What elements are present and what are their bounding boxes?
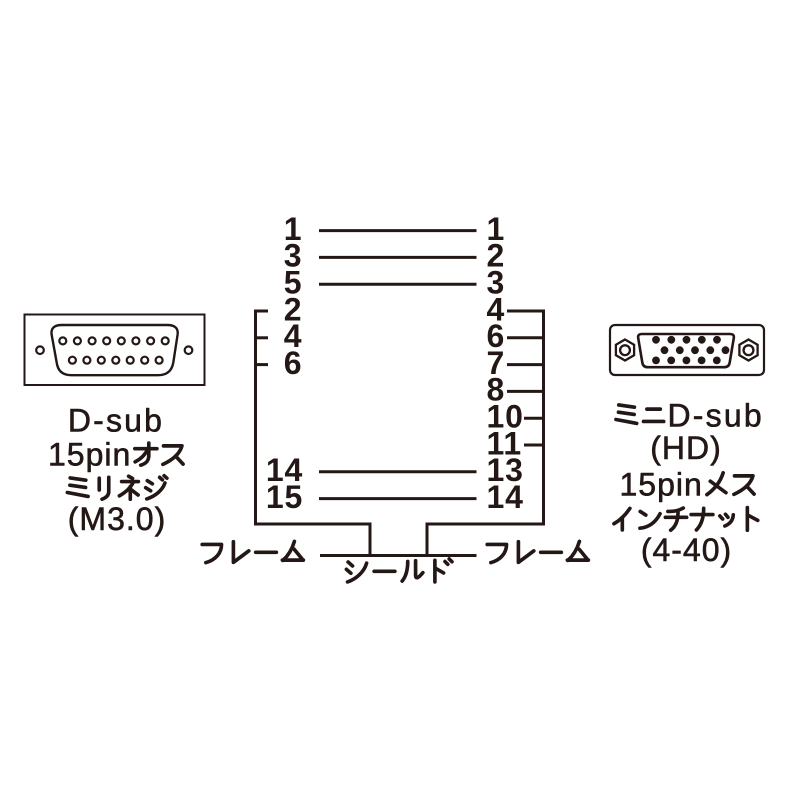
svg-text:D-sub: D-sub <box>68 403 164 439</box>
svg-text:15pin: 15pin <box>620 467 703 503</box>
svg-text:(4-40): (4-40) <box>641 532 732 568</box>
svg-text:15: 15 <box>266 479 303 515</box>
svg-text:D-sub: D-sub <box>668 398 764 434</box>
svg-text:14: 14 <box>487 479 524 515</box>
svg-text:15pin: 15pin <box>48 437 131 473</box>
svg-text:(HD): (HD) <box>650 430 722 466</box>
svg-text:(M3.0): (M3.0) <box>68 501 166 537</box>
svg-text:6: 6 <box>284 345 303 381</box>
